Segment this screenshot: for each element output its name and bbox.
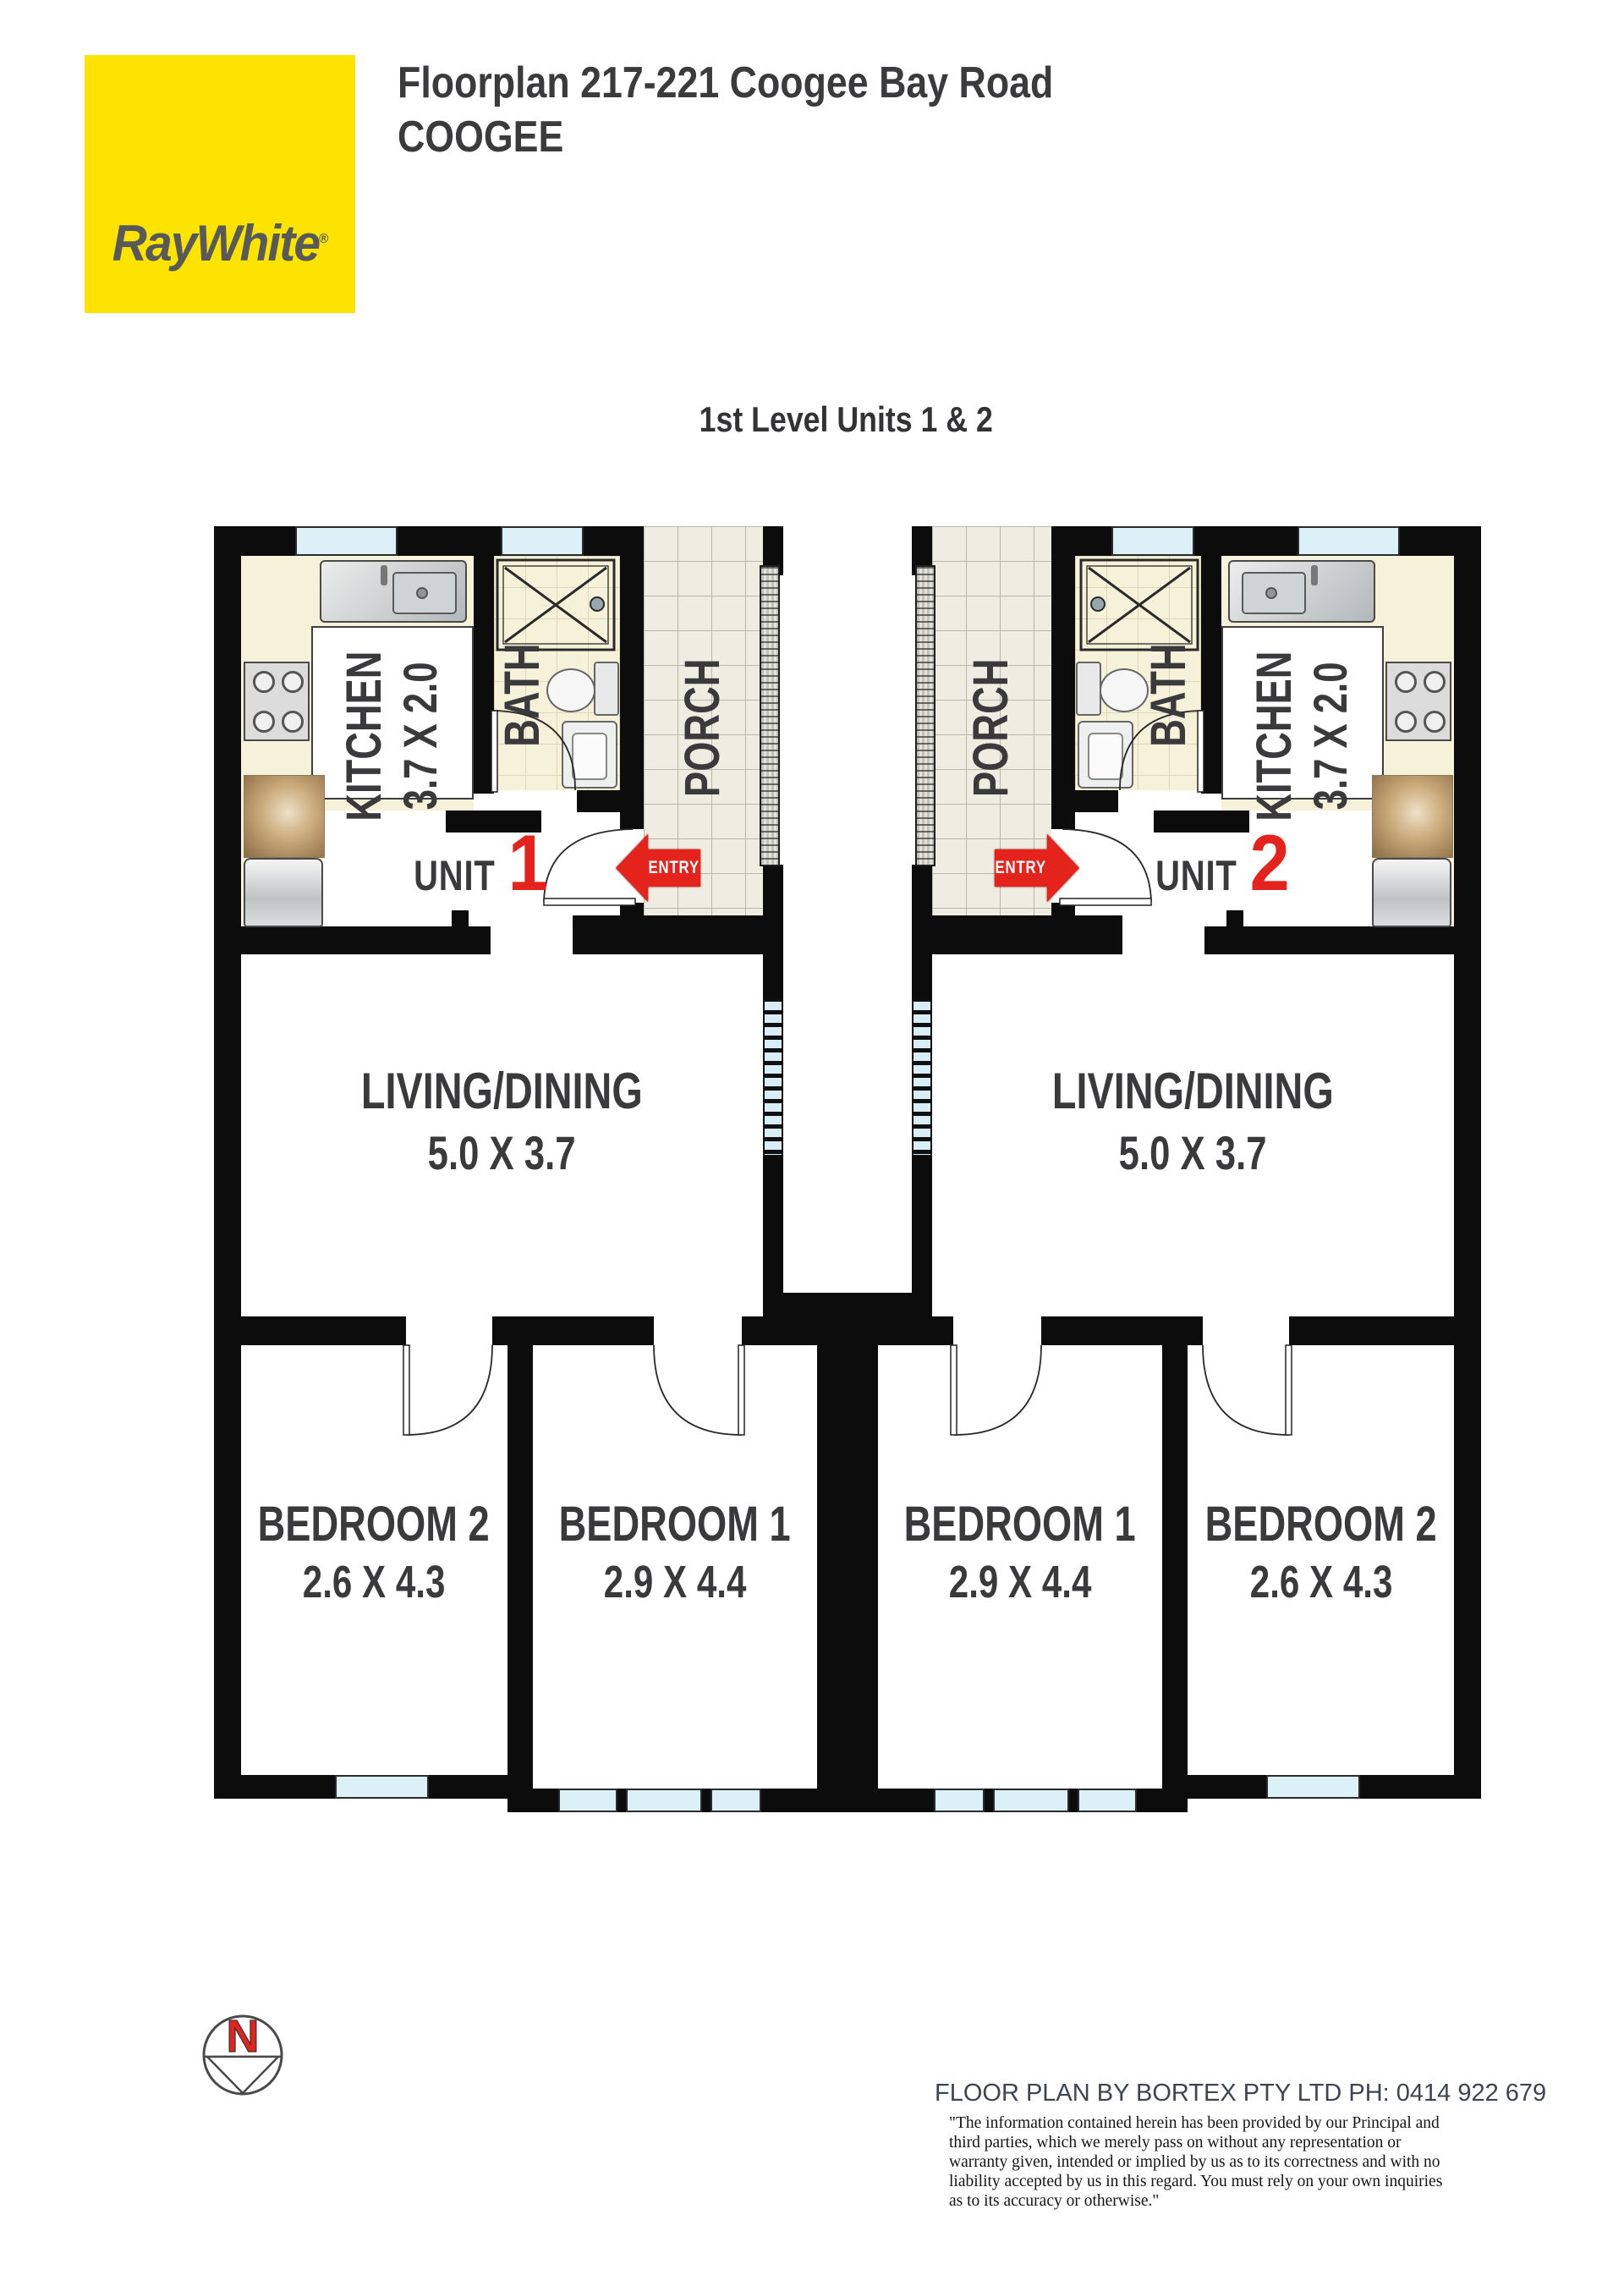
entry-arrow-u2: ENTRY xyxy=(995,834,1079,902)
wall xyxy=(620,526,644,829)
unit-number: 1 xyxy=(507,833,547,893)
toilet-icon-u2 xyxy=(1076,662,1101,716)
window xyxy=(1111,526,1194,556)
wall xyxy=(474,526,494,794)
wall xyxy=(1154,811,1249,833)
wall xyxy=(878,1316,953,1345)
door-bedroom1-u2 xyxy=(951,1345,1041,1435)
north-compass-icon: N xyxy=(200,2012,285,2102)
toilet-bowl-icon-u1 xyxy=(546,668,595,712)
unit-label-1: UNIT1 xyxy=(381,833,550,903)
door-bedroom2-u1 xyxy=(403,1345,492,1435)
north-letter: N xyxy=(227,2012,260,2062)
wall xyxy=(742,1316,817,1345)
wall xyxy=(1051,526,1075,829)
wall xyxy=(1204,926,1481,954)
entry-label: ENTRY xyxy=(649,858,700,878)
room-name: PORCH xyxy=(675,658,731,796)
raywhite-logo: RayWhite® xyxy=(85,55,355,313)
title-line-2: COOGEE xyxy=(398,110,1053,164)
window xyxy=(501,526,584,556)
room-name: BEDROOM 2 xyxy=(1205,1495,1437,1554)
room-dims: 3.7 X 2.0 xyxy=(1303,662,1358,811)
room-name: LIVING/DINING xyxy=(361,1059,643,1124)
lightwell-window-u2 xyxy=(912,1000,932,1157)
unit-word: UNIT xyxy=(1155,851,1237,900)
bath-label-u2: BATH xyxy=(1142,602,1196,789)
wall xyxy=(1289,1316,1481,1345)
porch-label-u1: PORCH xyxy=(676,609,730,846)
door-bedroom1-u1 xyxy=(654,1345,744,1435)
disclaimer-line: liability accepted by us in this regard.… xyxy=(949,2172,1442,2191)
room-dims: 2.9 X 4.4 xyxy=(604,1554,747,1610)
window xyxy=(558,1789,617,1812)
registered-mark: ® xyxy=(320,232,327,246)
stove-icon-u1 xyxy=(244,662,310,741)
porch-screen-u2 xyxy=(915,565,935,866)
unit-label-2: UNIT2 xyxy=(1145,833,1314,903)
window xyxy=(993,1789,1069,1812)
title-line-1: Floorplan 217-221 Coogee Bay Road xyxy=(398,56,1053,110)
floorplan-credit: FLOOR PLAN BY BORTEX PTY LTD PH: 0414 92… xyxy=(935,2080,1546,2107)
room-name: PORCH xyxy=(963,658,1019,796)
room-dims: 2.6 X 4.3 xyxy=(303,1554,446,1610)
entry-arrow-u1: ENTRY xyxy=(616,834,700,902)
wall xyxy=(577,790,644,812)
window xyxy=(934,1789,985,1812)
wall xyxy=(1051,790,1118,812)
living-label-u1: LIVING/DINING 5.0 X 3.7 xyxy=(290,1053,713,1189)
arrow-head-left-icon xyxy=(616,834,648,902)
bedroom1-label-u1: BEDROOM 1 2.9 X 4.4 xyxy=(523,1485,827,1620)
room-name: BATH xyxy=(495,644,551,747)
porch-screen-u1 xyxy=(760,565,780,866)
window xyxy=(626,1789,702,1812)
bedroom2-label-u1: BEDROOM 2 2.6 X 4.3 xyxy=(222,1485,526,1620)
disclaimer-line: third parties, which we merely pass on w… xyxy=(949,2133,1442,2152)
wall xyxy=(214,926,491,954)
unit-word: UNIT xyxy=(414,851,496,900)
disclaimer-line: warranty given, intended or implied by u… xyxy=(949,2152,1442,2172)
window xyxy=(295,526,398,556)
wall xyxy=(1201,526,1221,794)
wall xyxy=(214,1316,406,1345)
room-dims: 5.0 X 3.7 xyxy=(1119,1124,1267,1183)
wall xyxy=(573,915,763,954)
page-title: Floorplan 217-221 Coogee Bay Road COOGEE xyxy=(398,56,1160,164)
room-name: BATH xyxy=(1141,644,1197,747)
disclaimer-line: as to its accuracy or otherwise." xyxy=(949,2191,1442,2211)
window xyxy=(710,1789,761,1812)
bedroom1-label-u2: BEDROOM 1 2.9 X 4.4 xyxy=(868,1485,1172,1620)
bench-icon-u2 xyxy=(1372,775,1453,858)
stove-icon-u2 xyxy=(1385,662,1451,741)
window xyxy=(1298,526,1400,556)
room-name: LIVING/DINING xyxy=(1052,1059,1334,1124)
room-name: KITCHEN xyxy=(1247,651,1303,821)
fridge-icon-u1 xyxy=(244,858,323,927)
room-dims: 2.9 X 4.4 xyxy=(949,1554,1092,1610)
fridge-icon-u2 xyxy=(1372,858,1451,927)
lightwell-window-u1 xyxy=(763,1000,783,1157)
toilet-icon-u1 xyxy=(594,662,619,716)
entry-label: ENTRY xyxy=(996,858,1046,878)
room-name: BEDROOM 1 xyxy=(559,1495,791,1554)
room-dims: 2.6 X 4.3 xyxy=(1250,1554,1393,1610)
room-dims: 5.0 X 3.7 xyxy=(428,1124,576,1183)
vanity-icon-u1 xyxy=(562,721,617,789)
window xyxy=(1078,1789,1137,1812)
raywhite-logo-text: RayWhite® xyxy=(112,214,327,272)
room-dims: 3.7 X 2.0 xyxy=(392,662,448,811)
window xyxy=(335,1775,429,1799)
disclaimer-text: "The information contained herein has be… xyxy=(949,2113,1442,2211)
bath-label-u1: BATH xyxy=(496,602,550,789)
living-label-u2: LIVING/DINING 5.0 X 3.7 xyxy=(981,1053,1404,1189)
bedroom2-label-u2: BEDROOM 2 2.6 X 4.3 xyxy=(1169,1485,1473,1620)
disclaimer-line: "The information contained herein has be… xyxy=(949,2113,1442,2133)
door-bedroom2-u2 xyxy=(1203,1345,1292,1435)
bench-icon-u1 xyxy=(244,775,325,858)
arrow-head-right-icon xyxy=(1047,834,1079,902)
vanity-icon-u2 xyxy=(1078,721,1133,789)
floorplan-page: { "header": { "logo_text": "RayWhite", "… xyxy=(0,0,1624,2286)
wall xyxy=(932,915,1122,954)
room-name: BEDROOM 1 xyxy=(904,1495,1136,1554)
room-name: KITCHEN xyxy=(337,651,392,821)
window xyxy=(1266,1775,1360,1799)
room-name: BEDROOM 2 xyxy=(258,1495,490,1554)
level-subtitle: 1st Level Units 1 & 2 xyxy=(423,399,1269,440)
porch-label-u2: PORCH xyxy=(964,609,1018,846)
unit-number: 2 xyxy=(1249,833,1289,893)
